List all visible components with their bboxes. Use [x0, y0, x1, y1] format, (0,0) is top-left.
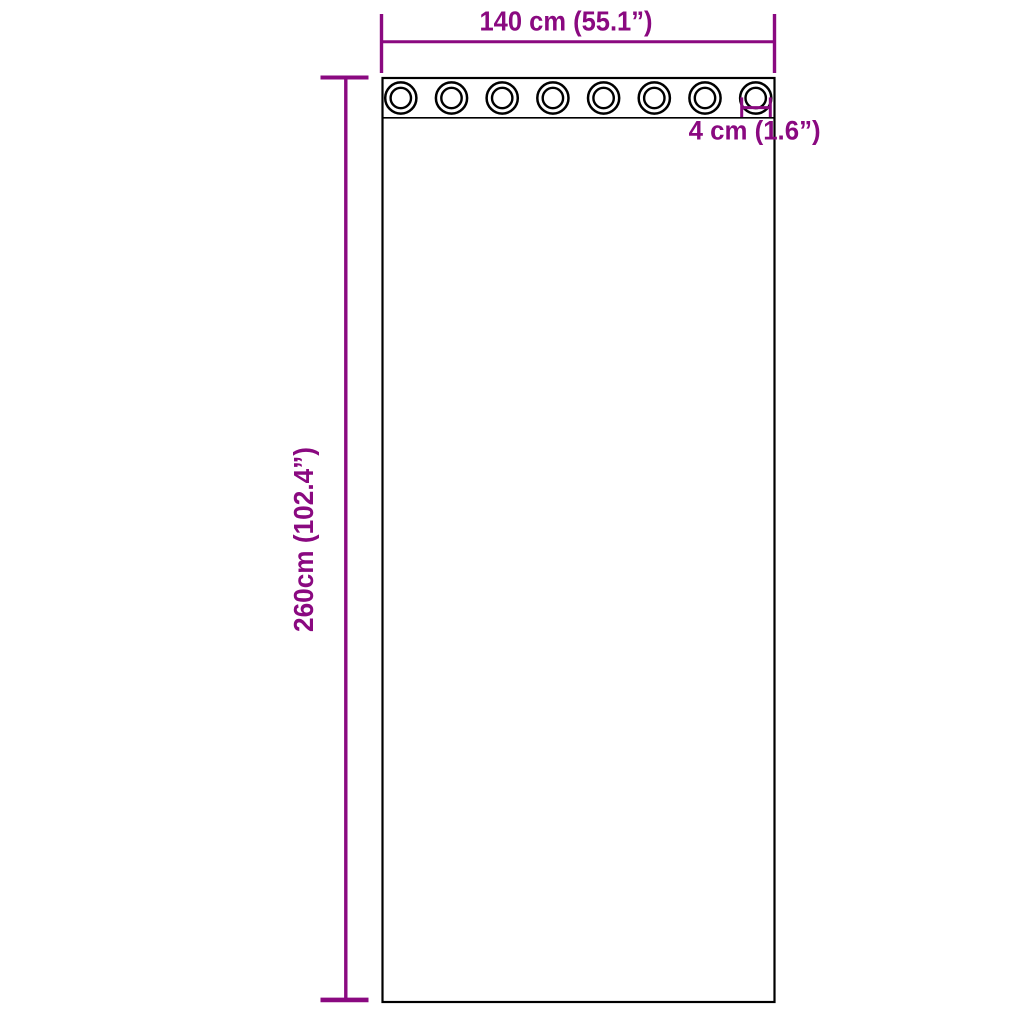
svg-text:4 cm (1.6”): 4 cm (1.6”): [689, 116, 821, 146]
svg-text:140 cm (55.1”): 140 cm (55.1”): [480, 5, 653, 36]
svg-text:260cm (102.4”): 260cm (102.4”): [288, 447, 319, 632]
